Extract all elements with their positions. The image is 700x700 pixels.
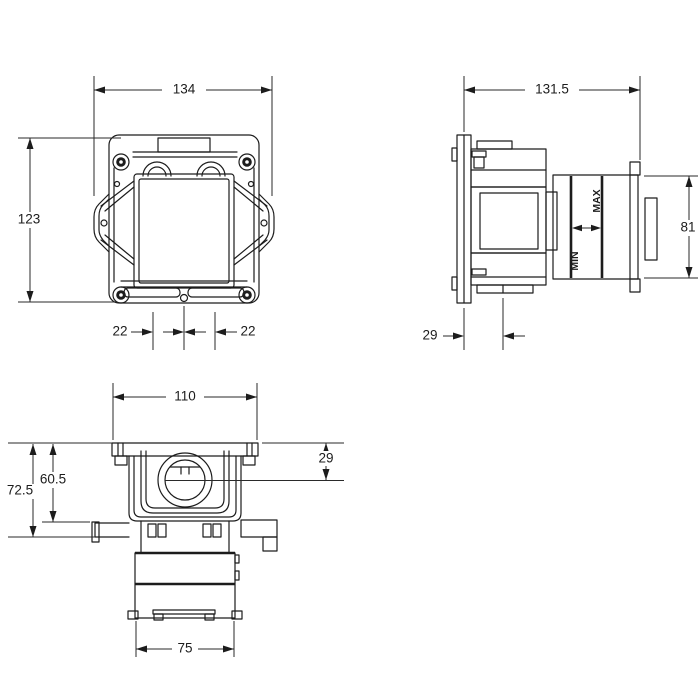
minmax-adjustment: MAX MIN bbox=[569, 189, 603, 270]
dim-bottom-plate-width: 110 bbox=[113, 383, 257, 440]
dim-label-134: 134 bbox=[173, 82, 196, 97]
dim-front-overall-width: 134 bbox=[94, 76, 272, 196]
dim-front-offsets: 22 22 bbox=[112, 306, 255, 350]
side-view-body bbox=[452, 135, 657, 303]
dim-label-123: 123 bbox=[18, 212, 41, 227]
screw-top-right bbox=[239, 154, 255, 170]
dim-label-72-5: 72.5 bbox=[7, 483, 33, 498]
bottom-view-body bbox=[92, 443, 277, 620]
dim-bottom-flange-depth: 72.5 bbox=[1, 444, 95, 537]
dim-label-29-bottom: 29 bbox=[318, 451, 333, 466]
dim-label-110: 110 bbox=[174, 389, 196, 404]
screw-bottom-left bbox=[113, 287, 129, 303]
bottom-view: 110 29 60.5 72.5 bbox=[1, 383, 344, 657]
label-max: MAX bbox=[591, 189, 603, 212]
dim-label-131-5: 131.5 bbox=[535, 82, 569, 97]
technical-drawing: 134 123 22 22 bbox=[0, 0, 700, 700]
screw-top-left bbox=[113, 154, 129, 170]
screw-bottom-right bbox=[239, 287, 255, 303]
dim-label-81: 81 bbox=[680, 220, 695, 235]
dim-side-overall-depth: 131.5 bbox=[464, 76, 640, 160]
dim-side-wall-clearance: 29 bbox=[422, 298, 525, 350]
label-min: MIN bbox=[569, 251, 581, 270]
dim-label-22-left: 22 bbox=[112, 324, 127, 339]
dim-side-frame-height: 81 bbox=[644, 176, 700, 278]
dim-label-75: 75 bbox=[177, 641, 192, 656]
dim-bottom-lower-width: 75 bbox=[136, 621, 234, 657]
dim-label-22-right: 22 bbox=[240, 324, 255, 339]
front-view: 134 123 22 22 bbox=[11, 76, 274, 350]
drawing-sheet: 134 123 22 22 bbox=[0, 0, 700, 700]
dim-label-29-side: 29 bbox=[422, 328, 437, 343]
dim-label-60-5: 60.5 bbox=[40, 472, 66, 487]
side-view: MAX MIN 131.5 81 bbox=[422, 76, 700, 350]
